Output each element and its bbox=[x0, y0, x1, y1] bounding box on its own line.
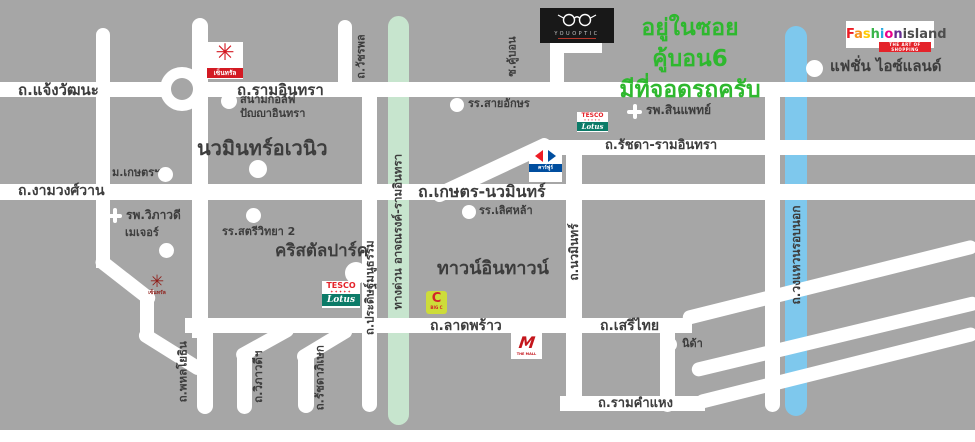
road-viphavadi bbox=[237, 356, 252, 414]
landmark-navamin-avenue: นวมินทร์อเวนิว bbox=[197, 137, 328, 159]
road-ramindra bbox=[0, 82, 975, 97]
big-c-logo: C BIG C bbox=[426, 291, 447, 314]
landmark-kasetsart: ม.เกษตรฯ bbox=[112, 167, 160, 179]
fashion-island-tagline: THE ART OF SHOPPING bbox=[879, 42, 931, 52]
carrefour-icon bbox=[529, 150, 562, 162]
road-v-left bbox=[96, 28, 110, 268]
carrefour-logo: คาร์ฟูร์ bbox=[529, 147, 562, 182]
marker-major bbox=[159, 243, 174, 258]
map-border-bottom bbox=[0, 430, 975, 442]
road-label-viphavadi: ถ.วิภาวดีฯ bbox=[253, 339, 265, 414]
central-wordmark: เซ็นทรัล bbox=[207, 68, 243, 78]
road-label-outer-ring: ถ.วงแหวนรอบนอก bbox=[790, 175, 802, 335]
marker-saiaksorn bbox=[450, 98, 464, 112]
map-canvas: ถ.แจ้งวัฒนะ ถ.รามอินทรา ถ.งามวงศ์วาน ถ.เ… bbox=[0, 0, 975, 442]
big-c-wordmark: BIG C bbox=[426, 306, 447, 310]
landmark-nida: นิด้า bbox=[682, 338, 703, 350]
promo-line1: อยู่ในซอย คู้บอน6 bbox=[600, 13, 780, 75]
youoptic-logo: YOUOPTIC bbox=[540, 8, 614, 43]
marker-navamin-avenue bbox=[249, 160, 267, 178]
landmark-major: เมเจอร์ bbox=[125, 227, 159, 239]
youoptic-wordmark: YOUOPTIC bbox=[540, 31, 614, 37]
road-label-ratchada-ramindra: ถ.รัชดา-รามอินทรา bbox=[605, 139, 717, 153]
road-label-kaset-nawamin: ถ.เกษตร-นวมินทร์ bbox=[418, 184, 546, 201]
fashion-island-logo: Fashionisland THE ART OF SHOPPING bbox=[846, 21, 934, 48]
marker-lertlah bbox=[462, 205, 476, 219]
roundabout-inner bbox=[171, 78, 193, 100]
the-mall-letter: M bbox=[517, 334, 535, 352]
landmark-saiaksorn: รร.สายอักษร bbox=[468, 98, 530, 110]
road-label-nawamin: ถ.นวมินทร์ bbox=[568, 212, 580, 292]
fashion-island-word2: island bbox=[903, 27, 947, 42]
road-label-ngamwongwan: ถ.งามวงศ์วาน bbox=[18, 184, 105, 199]
landmark-golf-course: สนามกอล์ฟ bbox=[240, 94, 295, 106]
landmark-crystal-park: คริสตัลปาร์ค bbox=[275, 242, 368, 261]
marker-nida bbox=[662, 337, 677, 352]
central-wordmark-small: เซ็นทรัล bbox=[144, 291, 170, 296]
road-label-serithai: ถ.เสรีไทย bbox=[600, 319, 659, 334]
lotus-wordmark: Lotus bbox=[577, 122, 608, 131]
hospital-cross-icon bbox=[627, 104, 642, 119]
youoptic-underline bbox=[558, 38, 596, 39]
landmark-golf-course-line2: ปัญญาอินทรา bbox=[240, 107, 305, 117]
road-soi-kubon bbox=[550, 38, 564, 92]
road-label-expressway: ทางด่วน อาจณรงค์-รามอินทรา bbox=[392, 117, 404, 347]
marker-fashion-island bbox=[806, 60, 823, 77]
carrefour-wordmark: คาร์ฟูร์ bbox=[529, 164, 562, 172]
central-starburst-icon: ✳ bbox=[207, 42, 243, 68]
road-label-ladprao: ถ.ลาดพร้าว bbox=[430, 319, 502, 334]
central-logo: ✳ เซ็นทรัล bbox=[207, 42, 243, 79]
central-starburst-icon: ✳ bbox=[144, 273, 170, 291]
road-label-soi-kubon: ซ.คู้บอน bbox=[507, 27, 518, 87]
landmark-lertlah: รร.เลิศหล้า bbox=[479, 205, 533, 217]
lotus-wordmark: Lotus bbox=[322, 294, 360, 306]
big-c-letter: C bbox=[426, 291, 447, 306]
road-label-phahonyothin: ถ.พหลโยธิน bbox=[177, 327, 189, 417]
eyeglasses-icon bbox=[555, 11, 599, 27]
the-mall-wordmark: THE MALL bbox=[511, 352, 542, 356]
landmark-town-in-town: ทาวน์อินทาวน์ bbox=[437, 259, 549, 279]
landmark-satriwitthaya2: รร.สตรีวิทยา 2 bbox=[222, 226, 295, 238]
fashion-island-word1: Fashion bbox=[846, 23, 903, 42]
road-label-watcharaphon: ถ.วัชรพล bbox=[356, 27, 367, 87]
road-label-chaengwattana: ถ.แจ้งวัฒนะ bbox=[18, 83, 99, 99]
landmark-fashion-island: แฟชั่น ไอซ์แลนด์ bbox=[830, 58, 942, 75]
tesco-lotus-logo: TESCO ✦✦✦✦✦ Lotus bbox=[322, 281, 360, 308]
marker-golf-course bbox=[221, 93, 237, 109]
marker-satriwitthaya2 bbox=[246, 208, 261, 223]
marker-kasetsart bbox=[158, 167, 173, 182]
road-watcharaphon bbox=[338, 20, 352, 92]
hospital-cross-icon bbox=[107, 208, 122, 223]
road-v-roundabout bbox=[192, 18, 208, 338]
road-v-ring-side bbox=[765, 88, 780, 412]
road-label-ratchadaphisek: ถ.รัชดาภิเษก bbox=[314, 333, 326, 423]
promo-text: อยู่ในซอย คู้บอน6 มีที่จอดรถครับ bbox=[600, 13, 780, 106]
landmark-vibhavadi-hospital: รพ.วิภาวดี bbox=[126, 209, 181, 222]
road-label-ramkhamhaeng: ถ.รามคำแหง bbox=[598, 397, 673, 411]
promo-line2: มีที่จอดรถครับ bbox=[600, 75, 780, 106]
tesco-lotus-logo-small: TESCO ✦✦✦✦✦ Lotus bbox=[577, 112, 608, 132]
central-logo-small: ✳ เซ็นทรัล bbox=[144, 273, 170, 296]
the-mall-logo: M THE MALL bbox=[511, 333, 542, 359]
